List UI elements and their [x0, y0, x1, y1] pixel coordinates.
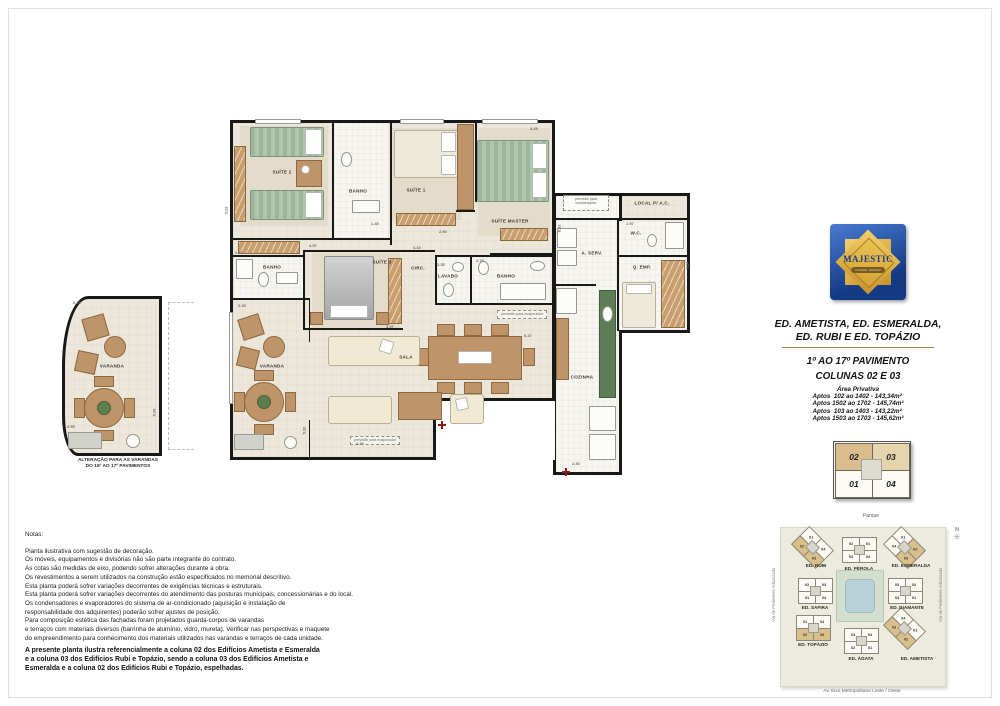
sofa-pillow: [455, 397, 469, 411]
private-area-line: Aptos 1503 ao 1703 - 145,62m²: [812, 415, 903, 422]
unit-number: 03: [851, 632, 855, 637]
unit-number: 02: [803, 632, 807, 637]
unit-number: 01: [803, 619, 807, 624]
wardrobe: [234, 146, 246, 222]
pillow: [305, 129, 322, 155]
room-label-sala: SALA: [399, 355, 413, 360]
unit-number: 04: [821, 546, 825, 551]
site-building-name: ED. SAFIRA: [802, 605, 829, 610]
room-label-alt-varanda: VARANDA: [100, 364, 124, 369]
note-line: Os revestimentos a serem utilizados na c…: [25, 574, 405, 583]
nightstand: [296, 160, 322, 187]
window: [229, 312, 233, 404]
private-area-line: Aptos 102 ao 1402 - 143,34m²: [812, 393, 903, 400]
unit-number: 04: [901, 615, 905, 620]
window: [400, 119, 444, 124]
dimension-label: 3.14: [684, 262, 689, 270]
kitchen-sink: [602, 306, 613, 322]
room-label-cozinha: COZINHA: [571, 375, 594, 380]
dimension-label: 3.25: [530, 126, 538, 131]
note-line: Os móveis, equipamentos e divisórias não…: [25, 556, 405, 565]
room-label-suite2: SUÍTE 2: [272, 170, 291, 175]
building-core: [856, 636, 867, 646]
private-area-line: Aptos 103 ao 1403 - 143,22m²: [812, 408, 903, 415]
dimension-label: 2.25: [73, 300, 81, 305]
unit-number: 02: [851, 645, 855, 650]
wall: [309, 420, 310, 458]
bathtub: [500, 283, 546, 300]
wall: [332, 120, 334, 240]
chair: [285, 392, 296, 412]
wall: [303, 250, 305, 330]
kitchen-counter: [556, 318, 569, 380]
unit-number: 04: [820, 619, 824, 624]
site-building-name: ED. DIAMANTE: [890, 605, 924, 610]
toilet: [443, 283, 454, 297]
note-line: Esta planta poderá sofrer variações deco…: [25, 583, 405, 592]
park-caption: Parque: [833, 513, 909, 519]
pillow: [305, 192, 322, 218]
unit-number: 04: [895, 595, 899, 600]
wall: [619, 255, 687, 257]
wall: [617, 218, 619, 331]
closet-corridor: [457, 124, 474, 210]
legal-line: A presente planta ilustra referencialmen…: [25, 646, 397, 655]
unit-number: 04: [822, 595, 826, 600]
logo-name: MAJESTIC: [830, 254, 906, 264]
unit-number: 01: [809, 534, 813, 539]
bottom-street-label: Av. Eixo Metropolitano Leste / Oeste: [780, 689, 944, 694]
wardrobe: [388, 258, 402, 324]
unit-number: 01: [912, 595, 916, 600]
site-building-diamante: 03 02 04 01: [888, 578, 921, 602]
room-label-banho2: BANHO: [263, 265, 281, 270]
unit-number: 02: [800, 543, 804, 548]
room-label-circ: CIRC.: [411, 266, 425, 271]
chair: [464, 324, 482, 336]
notes-title: Notas:: [25, 531, 405, 540]
window: [255, 119, 301, 124]
vase: [284, 436, 297, 449]
vase: [126, 434, 140, 448]
chair: [94, 376, 114, 387]
room-label-banho1: BANHO: [349, 189, 367, 194]
chair: [523, 348, 535, 366]
dimension-label: 8.51: [556, 225, 561, 233]
dimension-label: 2.30: [572, 461, 580, 466]
right-street-label: Via de Pedestres Arborizada: [938, 568, 943, 622]
shower: [665, 222, 684, 249]
note-line: Planta ilustrativa com sugestão de decor…: [25, 548, 405, 557]
toilet: [341, 152, 352, 167]
condenser-note: previsão para condensador: [563, 195, 609, 211]
stove: [556, 288, 577, 314]
notes-block: Notas: Planta ilustrativa com sugestão d…: [25, 531, 405, 643]
private-area-line: Aptos 1502 ao 1702 - 145,74m²: [812, 400, 903, 407]
wardrobe: [661, 260, 685, 328]
wall: [456, 210, 475, 212]
side-table-round: [263, 336, 285, 358]
unit-number: 04: [892, 543, 896, 548]
unit-number: 01: [805, 595, 809, 600]
unit-number: 03: [822, 582, 826, 587]
room-label-qemp: Q. EMP.: [633, 265, 652, 270]
site-building-safira: 02 03 01 04: [798, 578, 831, 602]
pillow: [532, 172, 547, 198]
brochure-page: previsão para condensador previsão para …: [0, 0, 1000, 706]
note-line: responsabilidade dos adquirentes) poderã…: [25, 609, 405, 618]
unit-number: 02: [904, 636, 908, 641]
site-building-name: ED. ÁGATA: [848, 656, 873, 661]
alt-varanda-dashed-extension: [168, 302, 194, 450]
left-street-label: Via de Pedestres Arborizada: [771, 568, 776, 622]
chair: [491, 324, 509, 336]
wall: [556, 284, 596, 286]
legal-line: e a coluna 03 dos Edifícios Rubi e Topáz…: [25, 655, 397, 664]
sofa-main: [328, 336, 420, 366]
fridge: [589, 406, 616, 431]
compass: N ✳: [948, 527, 966, 541]
planter-box: [68, 432, 102, 449]
room-label-local-ac: LOCAL P/ A.C.: [635, 201, 670, 206]
dimension-label: 3.12: [223, 207, 228, 215]
buildings-title-line1: ED. AMETISTA, ED. ESMERALDA,: [758, 318, 958, 331]
site-building-name: ED. AMETISTA: [901, 656, 934, 661]
floor-range: 1º AO 17º PAVIMENTO: [758, 354, 958, 369]
alt-varanda-caption-line2: DO 15º AO 17º PAVIMENTOS: [52, 464, 184, 470]
wall: [435, 303, 553, 305]
note-line: Para composição estética das fachadas fo…: [25, 617, 405, 626]
unit-number: 02: [913, 546, 917, 551]
unit-number: 04: [868, 632, 872, 637]
dimension-label: 2.95: [67, 424, 75, 429]
dimension-label: 1.97: [626, 221, 634, 226]
wall: [232, 298, 310, 300]
dimension-label: 1.45: [371, 221, 379, 226]
dimension-label: 4.40: [356, 441, 364, 446]
pillow: [441, 155, 456, 175]
room-label-banho3: BANHO: [497, 274, 515, 279]
dimension-label: 2.90: [439, 229, 447, 234]
site-building-name: ED. PÉROLA: [845, 566, 874, 571]
note-line: Esta planta poderá sofrer variações deco…: [25, 591, 405, 600]
closet: [238, 241, 300, 254]
private-area-lines: Aptos 102 ao 1402 - 143,34m²Aptos 1502 a…: [812, 393, 903, 422]
entry-marker-icon: [562, 468, 570, 476]
site-building-agata: 03 04 02 01: [844, 628, 877, 652]
room-label-suite3: SUÍTE 3: [372, 260, 391, 265]
wall: [303, 250, 435, 252]
dimension-label: 3.37: [386, 324, 394, 329]
unit-number: 03: [812, 555, 816, 560]
dimension-label: 4.57: [309, 243, 317, 248]
dimension-label: 2.15: [605, 333, 613, 338]
alt-varanda-caption: ALTERAÇÃO PARA AS VARANDAS DO 15º AO 17º…: [52, 458, 184, 470]
site-building-topazio: 01 04 02 03: [796, 615, 829, 639]
evaporator-note: previsão para evaporador: [497, 310, 547, 319]
toilet: [258, 272, 269, 287]
unit-number: 03: [895, 582, 899, 587]
room-label-suite1: SUÍTE 1: [406, 188, 425, 193]
wall: [490, 253, 553, 255]
unit-number: 04: [866, 554, 870, 559]
sink-counter: [276, 272, 298, 284]
wall: [390, 120, 392, 245]
note-line: do empreendimento para conhecimento dos …: [25, 635, 405, 644]
sink: [452, 262, 464, 272]
pillow: [532, 143, 547, 169]
entry-marker-icon: [438, 421, 446, 429]
notes-gap: [25, 540, 405, 548]
planter-box: [234, 434, 264, 450]
pillow: [330, 305, 368, 318]
chair: [464, 382, 482, 394]
closet: [396, 213, 456, 226]
chair: [254, 370, 274, 381]
pillow: [626, 284, 652, 294]
unit-number: 02: [912, 582, 916, 587]
plant: [97, 401, 111, 415]
pillow: [441, 132, 456, 152]
sink: [530, 261, 545, 271]
building-core: [900, 586, 911, 596]
chair: [437, 324, 455, 336]
note-line: As cotas são medidas de eixo, podendo so…: [25, 565, 405, 574]
wall: [470, 255, 472, 305]
freezer: [589, 434, 616, 460]
private-area-title: Área Privativa: [758, 386, 958, 393]
site-building-perola: 02 01 03 04: [842, 537, 875, 561]
sink-counter: [352, 200, 380, 213]
title-separator: [782, 347, 934, 348]
unit-number: 01: [868, 645, 872, 650]
room-label-lavabo: LAVABO: [438, 274, 458, 279]
dimension-label: 4.10: [413, 245, 421, 250]
unit-number: 03: [892, 624, 896, 629]
title-block: ED. AMETISTA, ED. ESMERALDA, ED. RUBI E …: [758, 318, 958, 384]
chair: [124, 398, 135, 418]
logo-tagline: CIDADE JARDIM: [851, 267, 885, 273]
toilet: [647, 234, 657, 247]
unit-number: 02: [849, 541, 853, 546]
dimension-label: 2.27: [235, 250, 243, 255]
site-building-name: ED. RUBI: [806, 563, 827, 568]
room-label-varanda: VARANDA: [260, 364, 284, 369]
key-core: [861, 459, 882, 480]
room-label-aserv: A. SERV.: [581, 251, 602, 256]
building-core: [854, 545, 865, 555]
bath1-tile: [334, 123, 388, 237]
room-label-wc: W.C.: [631, 231, 642, 236]
note-line: Os condensadores e evaporadores do siste…: [25, 600, 405, 609]
table-runner: [458, 351, 492, 364]
side-table: [310, 312, 323, 325]
legal-line: Esmeralda e a coluna 02 dos Edifícios Ru…: [25, 664, 397, 673]
unit-number: 03: [904, 555, 908, 560]
wall: [556, 218, 687, 220]
sofa-second: [328, 396, 392, 424]
wall: [232, 255, 305, 257]
building-core: [808, 623, 819, 633]
columns-label: COLUNAS 02 E 03: [758, 369, 958, 384]
lamp: [301, 165, 310, 174]
lounge-chair: [74, 350, 99, 375]
wall: [232, 238, 390, 240]
compass-icon: ✳: [948, 533, 966, 541]
chair: [491, 382, 509, 394]
window: [482, 119, 538, 124]
dimension-label: 2.75: [476, 258, 484, 263]
dimension-label: 6.47: [524, 333, 532, 338]
private-area-block: Área Privativa Aptos 102 ao 1402 - 143,3…: [758, 386, 958, 425]
site-pool: [845, 579, 875, 613]
unit-number: 01: [901, 534, 905, 539]
coffee-table: [398, 392, 442, 420]
room-label-suite-master: SUÍTE MASTER: [491, 219, 528, 224]
laundry-tank: [557, 250, 577, 266]
dimension-label: 5.10: [301, 427, 306, 435]
unit-number: 02: [805, 582, 809, 587]
notes-lines: Planta ilustrativa com sugestão de decor…: [25, 548, 405, 644]
side-table-round: [104, 336, 126, 358]
plant: [257, 395, 271, 409]
unit-number: 03: [849, 554, 853, 559]
site-building-name: ED. TOPÁZIO: [798, 642, 828, 647]
majestic-logo: MAJESTIC CIDADE JARDIM: [830, 224, 906, 300]
legal-block: A presente planta ilustra referencialmen…: [25, 646, 397, 673]
unit-number: 01: [913, 627, 917, 632]
dimension-label: 2.25: [238, 303, 246, 308]
shower: [236, 259, 253, 279]
dimension-label: 5.10: [151, 409, 156, 417]
buildings-title-line2: ED. RUBI E ED. TOPÁZIO: [758, 331, 958, 344]
unit-number: 01: [866, 541, 870, 546]
dimension-label: 1.35: [437, 262, 445, 267]
wardrobe: [500, 228, 548, 241]
building-core: [810, 586, 821, 596]
toilet: [478, 261, 489, 275]
site-building-name: ED. ESMERALDA: [892, 563, 931, 568]
unit-number: 03: [820, 632, 824, 637]
column-key-diagram: 02 03 01 04: [833, 441, 911, 499]
note-line: e terraços com materiais diversos (barri…: [25, 626, 405, 635]
wall: [435, 255, 553, 257]
